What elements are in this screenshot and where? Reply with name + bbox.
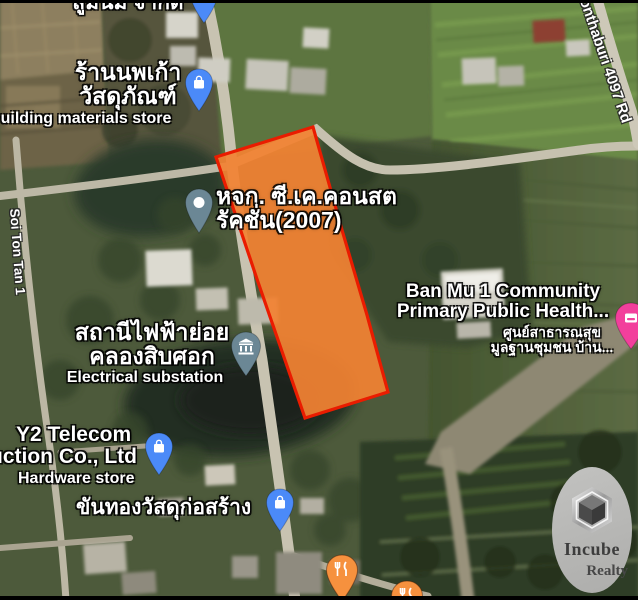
construction-pin[interactable] <box>184 188 214 234</box>
fork-knife-icon <box>325 554 359 600</box>
label-electrical-substation-en: Electrical substation <box>67 369 224 386</box>
letterbox-bar-bottom <box>0 596 638 600</box>
label-line: มูลฐานชุมชน บ้าน... <box>491 340 614 355</box>
company-pin[interactable] <box>189 0 219 24</box>
label-line: รัคชั่น(2007) <box>216 208 397 232</box>
label-line: ศูนย์สาธารณสุข <box>491 325 614 340</box>
watermark-brand-sub: Realty <box>586 563 628 580</box>
label-ban-mu-health-en: Ban Mu 1 Community Primary Public Health… <box>397 282 609 322</box>
label-line: ร้านนพเก้า <box>75 60 182 84</box>
y2-telecom-pin[interactable] <box>144 432 174 476</box>
label-ck-construction: หจก. ซี.เค.คอนสต รัคชั่น(2007) <box>216 184 397 232</box>
label-y2-telecom-1: Y2 Telecom <box>16 424 131 446</box>
label-line: Ban Mu 1 Community <box>397 282 609 302</box>
shopping-bag-icon <box>265 488 295 532</box>
label-building-materials-store-th: ร้านนพเก้า วัสดุภัณฑ์ <box>75 60 182 108</box>
restaurant-pin[interactable] <box>325 554 359 600</box>
substation-pin[interactable] <box>230 331 262 377</box>
khanthong-pin[interactable] <box>265 488 295 532</box>
letterbox-bar-top <box>0 0 638 3</box>
lodging-card-icon <box>614 302 638 350</box>
label-line: หจก. ซี.เค.คอนสต <box>216 184 397 208</box>
label-ban-mu-health-th: ศูนย์สาธารณสุข มูลฐานชุมชน บ้าน... <box>491 325 614 355</box>
label-line: วัสดุภัณฑ์ <box>75 84 182 108</box>
label-line: Primary Public Health... <box>397 302 609 322</box>
shopping-bag-icon <box>144 432 174 476</box>
map-canvas[interactable]: Soi Ton Tan 1 onthaburi 4097 Rd สูมนม จำ… <box>0 0 638 600</box>
label-khanthong-building-materials: ขันทองวัสดุก่อสร้าง <box>76 497 251 519</box>
label-y2-telecom-2: uction Co., Ltd <box>0 446 137 468</box>
store-pin[interactable] <box>184 68 214 112</box>
map-pin-icon <box>189 0 219 24</box>
hexagon-cube-icon <box>569 485 615 535</box>
label-line: คลองสิบศอก <box>75 344 229 368</box>
label-line: สถานีไฟฟ้าย่อย <box>75 320 229 344</box>
label-building-materials-store-en: uilding materials store <box>1 110 172 127</box>
shopping-bag-icon <box>184 68 214 112</box>
label-y2-telecom-hardware-store: Hardware store <box>18 470 135 487</box>
watermark-brand: Incube <box>564 539 620 560</box>
institution-building-icon <box>230 331 262 377</box>
lodging-pin[interactable] <box>614 302 638 350</box>
watermark-badge: Incube Realty <box>552 467 632 593</box>
place-dot-icon <box>184 188 214 234</box>
label-electrical-substation-th: สถานีไฟฟ้าย่อย คลองสิบศอก <box>75 320 229 368</box>
